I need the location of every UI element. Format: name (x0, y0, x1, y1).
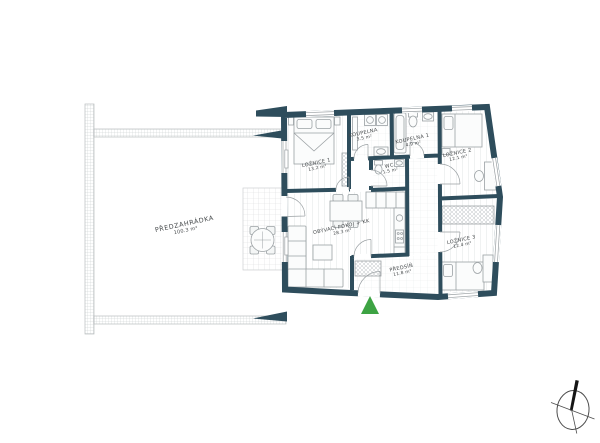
wardrobe-loznice-3 (442, 206, 494, 224)
coffee-table (313, 245, 332, 260)
compass-icon (551, 380, 595, 434)
double-bed-loznice-1 (289, 117, 341, 164)
floor-plan-svg (0, 0, 600, 443)
hall-niche-floor (351, 159, 369, 194)
garden-patio (243, 188, 287, 270)
wardrobe-predsin (355, 261, 381, 276)
entrance-marker-icon (361, 296, 379, 314)
garden-table (250, 227, 275, 255)
floor-plan: PŘEDZAHRÁDKA 100.3 m² LOŽNICE 1 13.2 m² … (0, 0, 600, 443)
